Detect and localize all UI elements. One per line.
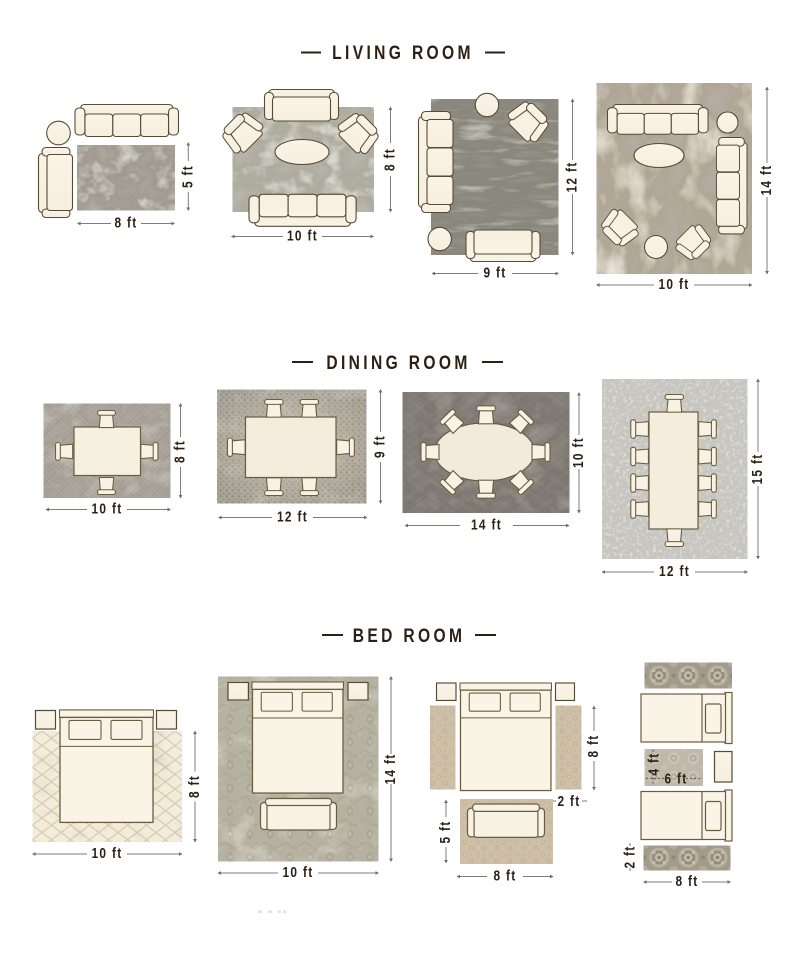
svg-text:12 ft: 12 ft [564, 162, 580, 193]
svg-text:14 ft: 14 ft [758, 165, 774, 196]
svg-text:10 ft: 10 ft [287, 227, 318, 243]
svg-text:9 ft: 9 ft [372, 435, 388, 458]
svg-text:8 ft: 8 ft [493, 867, 516, 883]
svg-text:LIVING ROOM: LIVING ROOM [332, 41, 474, 63]
svg-text:8 ft: 8 ft [382, 148, 398, 171]
svg-text:8 ft: 8 ft [114, 214, 137, 230]
svg-text:2 ft: 2 ft [557, 793, 580, 809]
svg-text:8 ft: 8 ft [675, 873, 698, 889]
svg-text:8 ft: 8 ft [186, 775, 202, 798]
svg-text:5 ft: 5 ft [179, 165, 195, 188]
svg-text:10 ft: 10 ft [570, 437, 586, 468]
svg-text:DINING ROOM: DINING ROOM [326, 351, 470, 373]
svg-text:2 ft: 2 ft [621, 845, 637, 868]
svg-text:14 ft: 14 ft [471, 516, 502, 532]
svg-text:12 ft: 12 ft [277, 508, 308, 524]
svg-text:4 ft: 4 ft [645, 752, 661, 775]
svg-text:5 ft: 5 ft [437, 820, 453, 843]
svg-text:10 ft: 10 ft [659, 276, 690, 292]
svg-text:12 ft: 12 ft [659, 563, 690, 579]
svg-text:14 ft: 14 ft [382, 754, 398, 785]
svg-text:8 ft: 8 ft [585, 734, 601, 757]
svg-text:10 ft: 10 ft [92, 500, 123, 516]
svg-text:10 ft: 10 ft [283, 864, 314, 880]
svg-text:10 ft: 10 ft [92, 845, 123, 861]
svg-text:9 ft: 9 ft [483, 264, 506, 280]
svg-text:6 ft: 6 ft [664, 770, 687, 786]
svg-text:15 ft: 15 ft [749, 454, 765, 485]
svg-text:8 ft: 8 ft [172, 440, 188, 463]
svg-text:BED ROOM: BED ROOM [353, 624, 466, 646]
